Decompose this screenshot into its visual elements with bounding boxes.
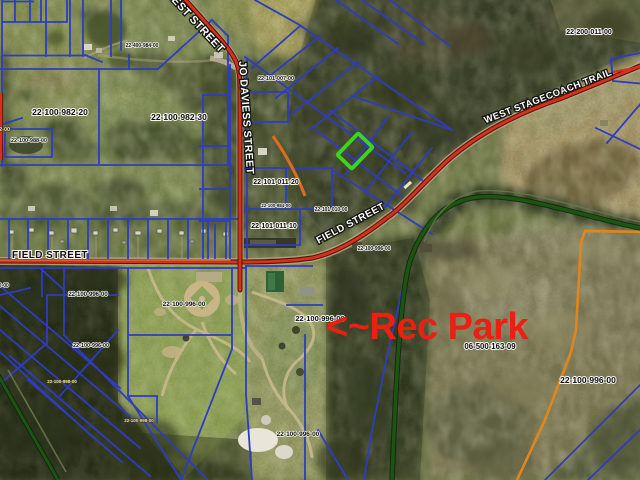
svg-text:22-100-996-00: 22-100-996-00 (560, 375, 616, 385)
svg-text:22-100-988-00: 22-100-988-00 (11, 138, 47, 144)
svg-text:22-100-996-00: 22-100-996-00 (277, 431, 320, 438)
svg-text:22-100-998-00: 22-100-998-00 (124, 418, 154, 423)
svg-text:22-100-996-00: 22-100-996-00 (358, 246, 391, 252)
svg-text:22-100-998-00: 22-100-998-00 (47, 379, 77, 384)
svg-text:22-100-982-30: 22-100-982-30 (151, 112, 207, 122)
svg-text:22-100-982-20: 22-100-982-20 (32, 107, 88, 117)
svg-text:<~Rec Park: <~Rec Park (326, 306, 529, 348)
svg-text:22-101-007-00: 22-101-007-00 (258, 76, 294, 82)
svg-text:22-200-011-00: 22-200-011-00 (566, 29, 612, 36)
svg-text:22-400-990-00: 22-400-990-00 (0, 283, 9, 289)
svg-text:22-400-984-00: 22-400-984-00 (126, 43, 159, 49)
svg-text:FIELD STREET: FIELD STREET (12, 250, 88, 261)
svg-text:22-101-011-20: 22-101-011-20 (253, 179, 299, 186)
svg-text:22-100-996-00: 22-100-996-00 (163, 301, 206, 308)
svg-text:22-101-011-10: 22-101-011-10 (251, 223, 297, 230)
svg-text:22-100-984-00: 22-100-984-00 (261, 203, 291, 208)
svg-text:22-400-982-00: 22-400-982-00 (0, 127, 10, 133)
svg-text:22-100-996-00: 22-100-996-00 (73, 343, 109, 349)
svg-text:22-100-996-00: 22-100-996-00 (68, 292, 108, 298)
svg-text:22-101-010-00: 22-101-010-00 (315, 207, 348, 213)
